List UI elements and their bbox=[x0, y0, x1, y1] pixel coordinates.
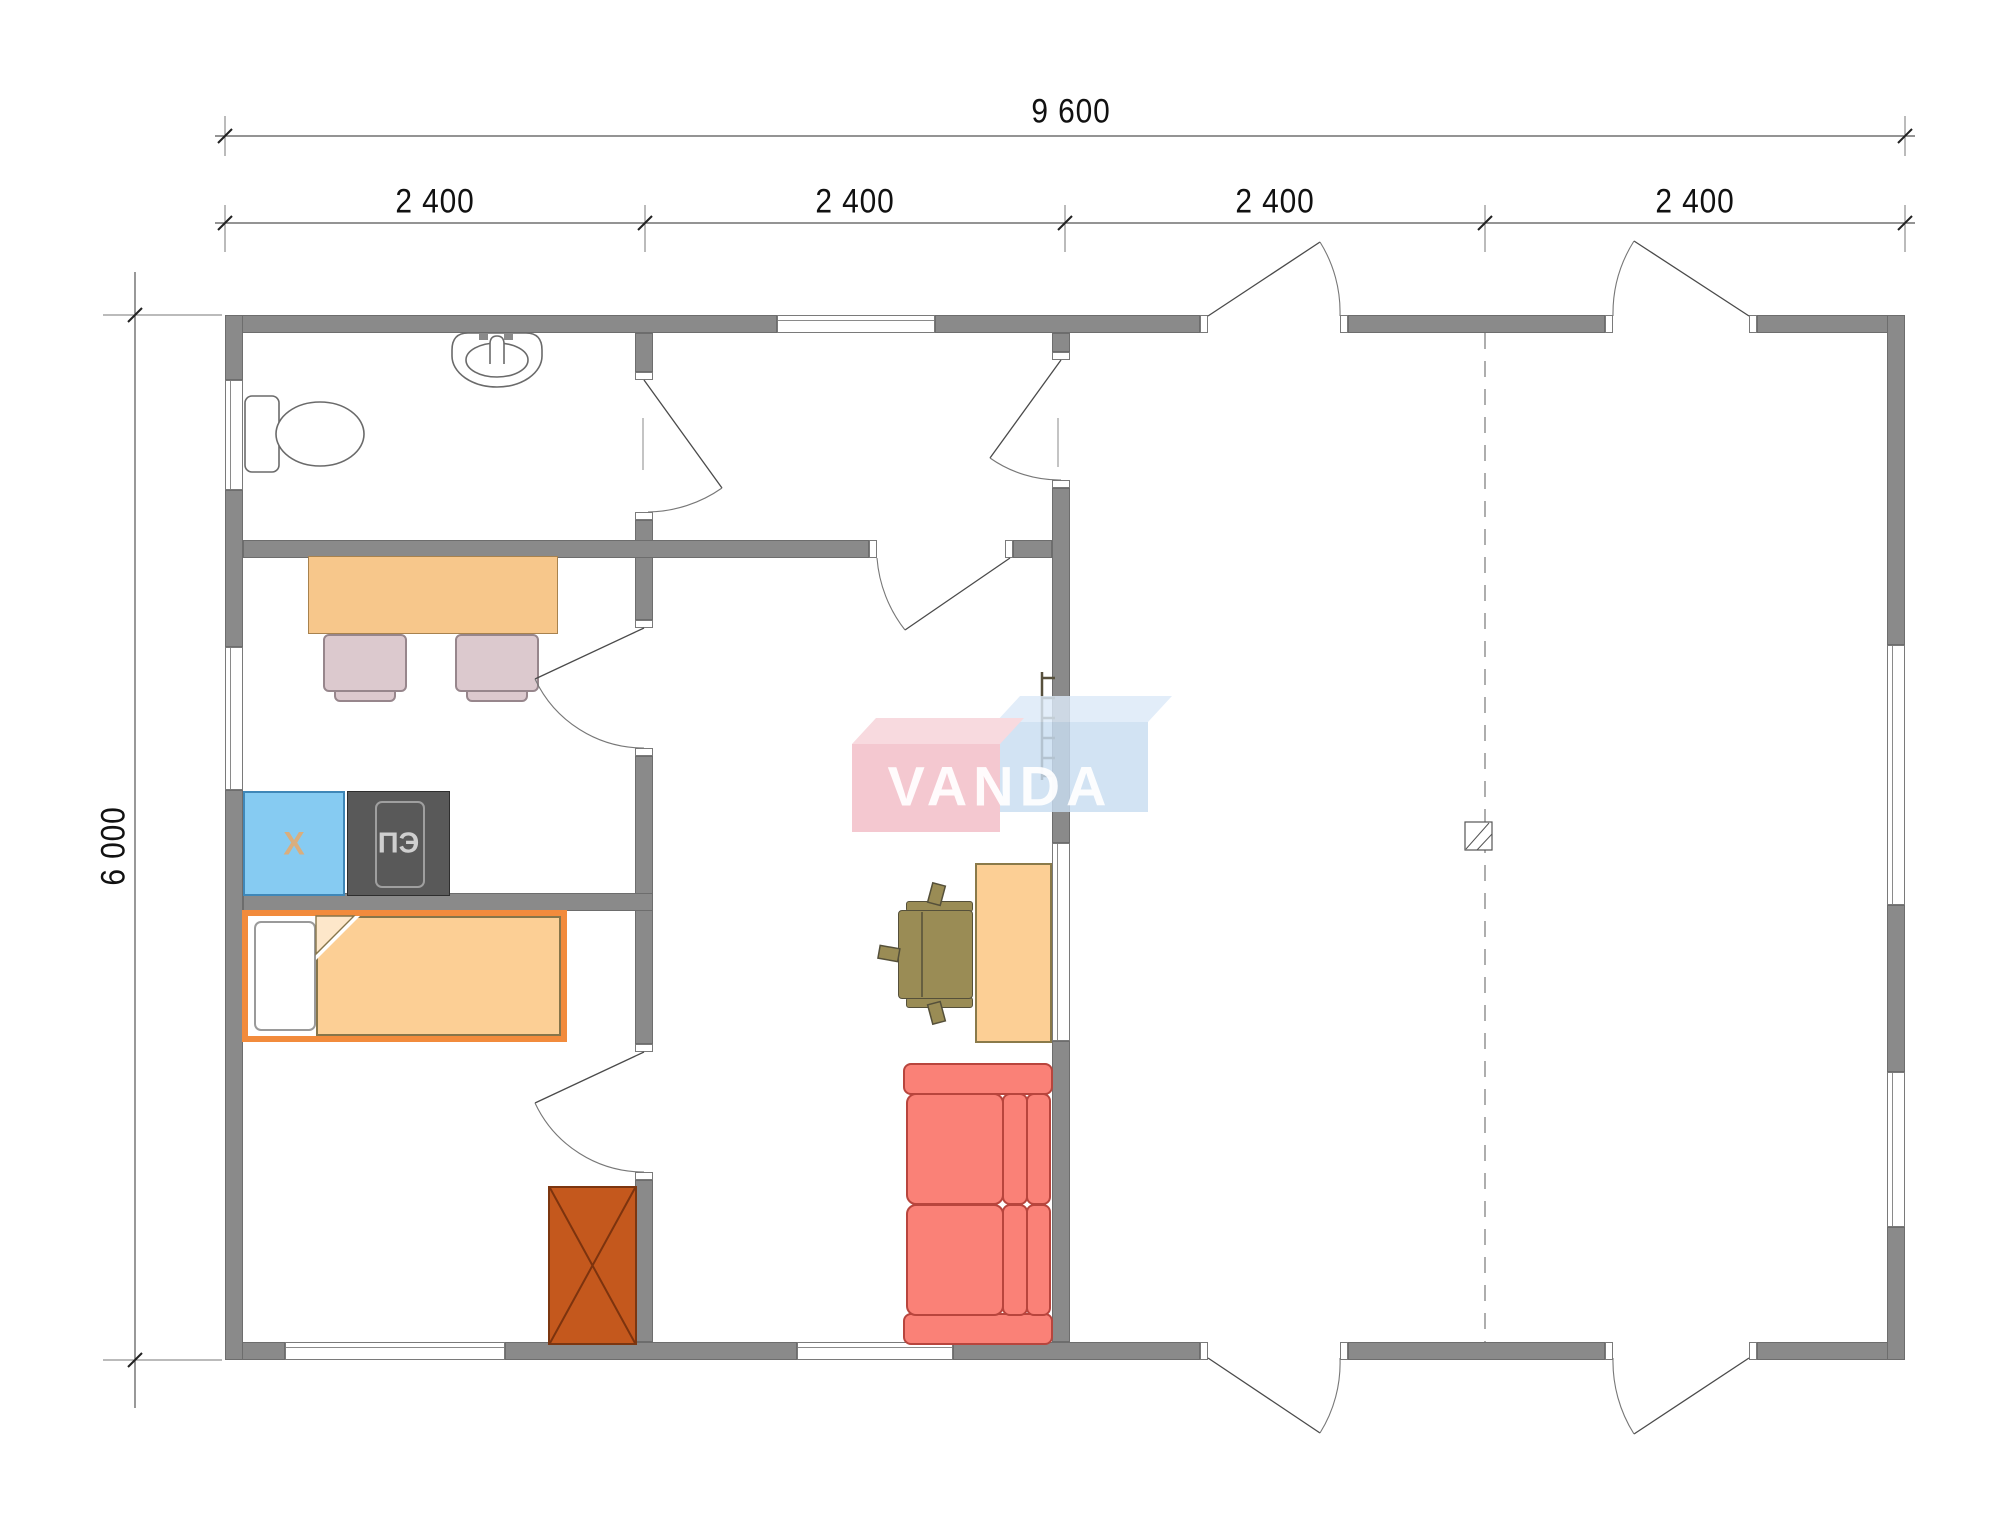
floor-plan-canvas: X ПЭ bbox=[0, 0, 2000, 1524]
dimension-total-width: 9 600 bbox=[1031, 93, 1110, 132]
dimension-module: 2 400 bbox=[815, 183, 894, 222]
dimension-module: 2 400 bbox=[1655, 183, 1734, 222]
dimension-total-height: 6 000 bbox=[95, 806, 134, 885]
dimension-module: 2 400 bbox=[1235, 183, 1314, 222]
watermark-text: VANDA bbox=[888, 754, 1113, 819]
watermark-pink-top bbox=[852, 718, 1024, 744]
dimension-module: 2 400 bbox=[395, 183, 474, 222]
